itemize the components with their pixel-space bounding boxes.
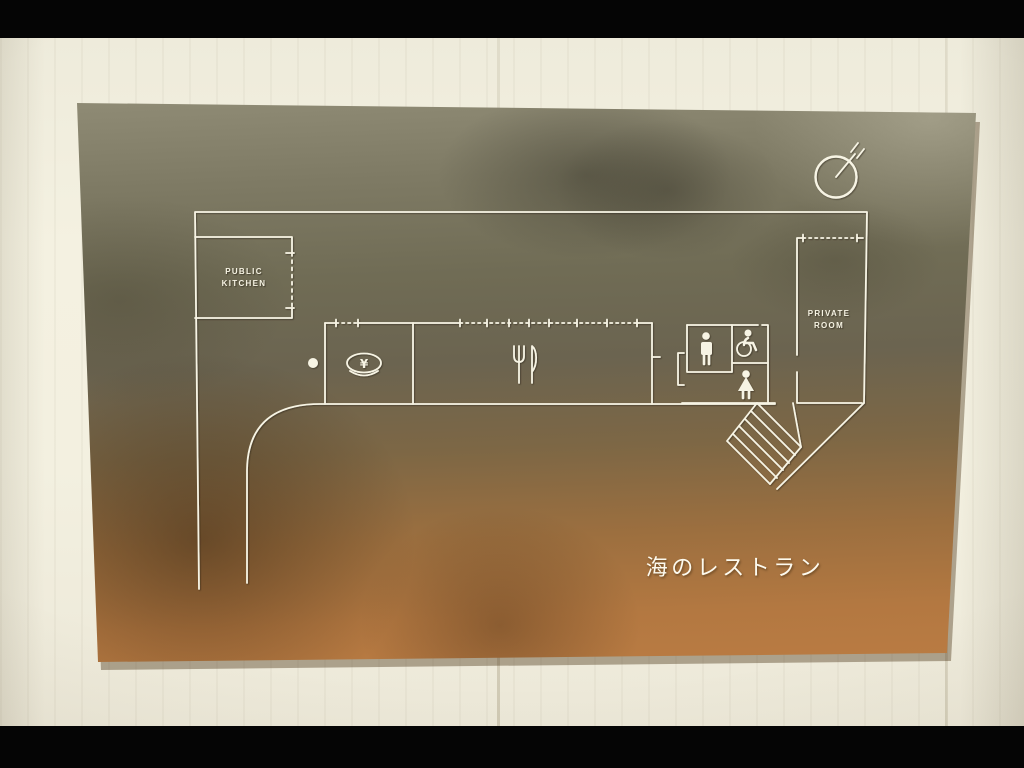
restaurant-title: 海のレストラン bbox=[610, 550, 860, 582]
yen-symbol: ¥ bbox=[360, 357, 369, 371]
photo-of-restaurant-floorplan-sign: ¥ bbox=[0, 0, 1024, 768]
public-kitchen-label-line2: KITCHEN bbox=[222, 279, 267, 288]
site-boundary bbox=[195, 212, 867, 589]
fork-and-knife-icon bbox=[514, 346, 536, 383]
private-room-label-line2: ROOM bbox=[814, 321, 844, 330]
wheelchair-icon bbox=[737, 330, 756, 357]
floor-plan-drawing: ¥ bbox=[0, 0, 1024, 768]
public-kitchen-label-line1: PUBLIC bbox=[225, 267, 263, 276]
public-kitchen-label: PUBLIC KITCHEN bbox=[214, 266, 274, 289]
female-figure-icon bbox=[738, 370, 754, 398]
private-room-label: PRIVATE ROOM bbox=[799, 308, 859, 331]
north-compass-icon bbox=[816, 143, 865, 198]
restroom-walls bbox=[678, 325, 775, 403]
male-figure-icon bbox=[701, 332, 712, 364]
main-building-walls bbox=[325, 320, 660, 405]
private-room-label-line1: PRIVATE bbox=[808, 309, 851, 318]
stairs bbox=[727, 403, 801, 484]
rice-bowl-cashier-icon: ¥ bbox=[347, 354, 381, 376]
entrance-dot bbox=[308, 358, 318, 368]
